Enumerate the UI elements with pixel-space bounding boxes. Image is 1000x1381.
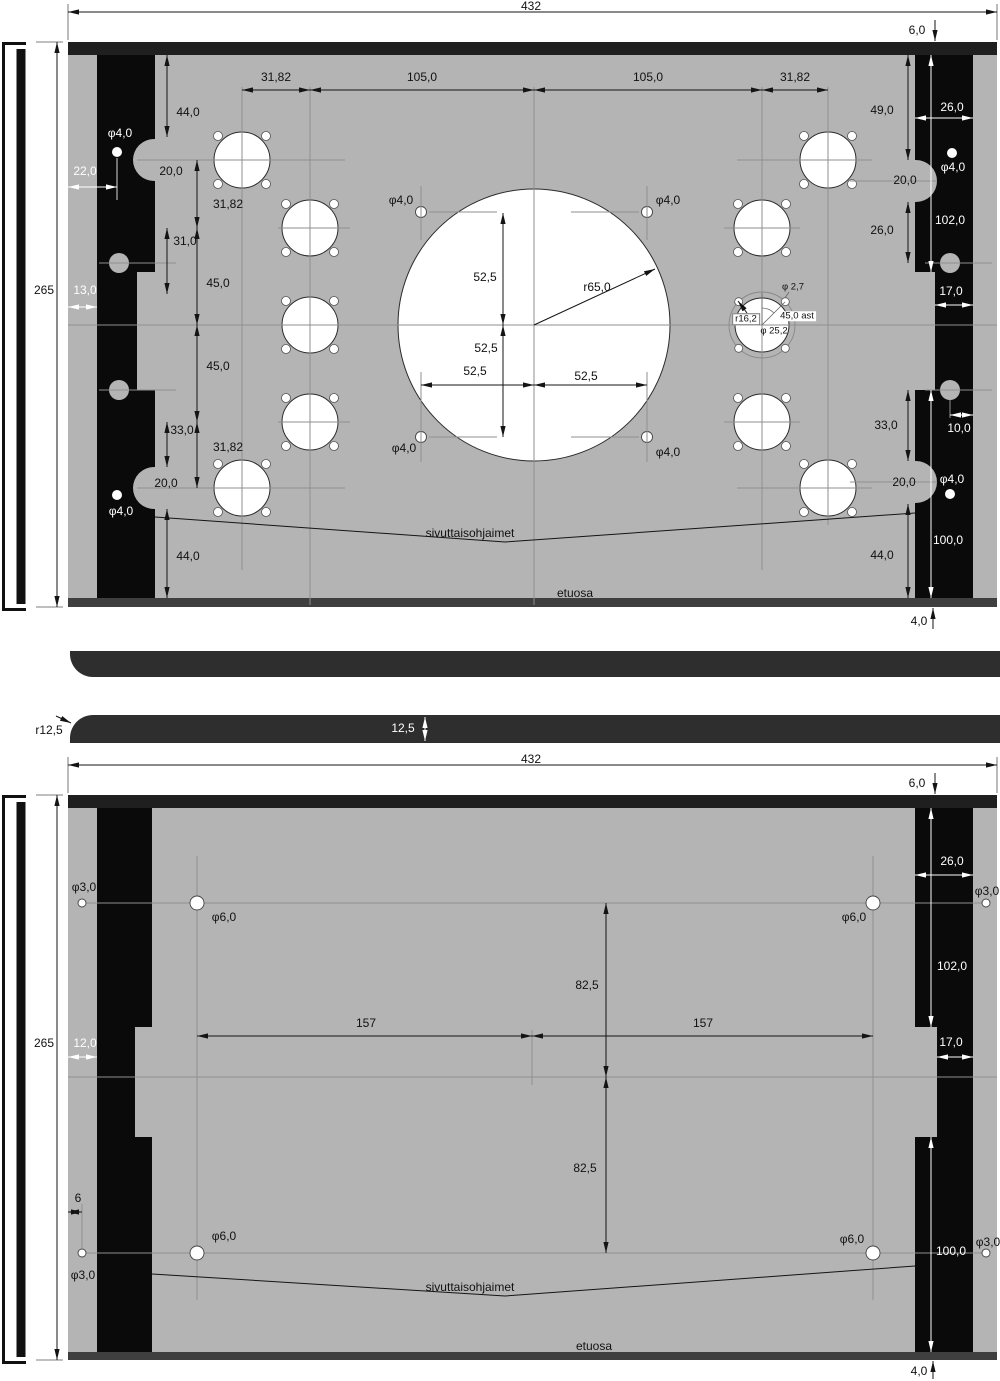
label-guide-hole-tl: φ4,0: [108, 127, 132, 139]
dim-left-33: 33,0: [170, 424, 193, 436]
label-bolt-hole-dia: φ 2,7: [782, 282, 804, 292]
dim-top-chain-2: 105,0: [407, 71, 437, 83]
back-left-profile-bar: [17, 802, 26, 1357]
dim-left-22: 22,0: [73, 165, 96, 177]
back-top-thickness: 6,0: [909, 777, 926, 789]
label-corner-hole-tr: φ4,0: [656, 194, 680, 206]
label-bore-dia: φ 25,2: [760, 326, 787, 336]
front-edge-profile: [70, 651, 1000, 677]
front-left-profile-bar: [17, 49, 26, 604]
guide-hole-phi4: [945, 489, 955, 499]
dim-right-49: 49,0: [870, 104, 893, 116]
label-guide-hole-bl: φ4,0: [109, 505, 133, 517]
dim-left-31: 31,0: [173, 235, 196, 247]
guide-hole-phi4: [112, 147, 122, 157]
front-top-edge-strip: [68, 42, 997, 55]
callout-side-guides-back: sivuttaisohjaimet: [426, 1281, 515, 1293]
back-height: 265: [34, 1037, 54, 1049]
front-top-thickness: 6,0: [909, 24, 926, 36]
dim-right-notch-20-bottom: 20,0: [892, 476, 915, 488]
dim-right-26: 26,0: [870, 224, 893, 236]
dim-center-525-vtop: 52,5: [473, 271, 496, 283]
dim-left-44-top: 44,0: [176, 106, 199, 118]
front-panel-view: [36, 4, 997, 629]
dim-left-44-bottom: 44,0: [176, 550, 199, 562]
dim-back-bar-width: 26,0: [940, 855, 963, 867]
drawing-canvas: [0, 0, 1000, 1381]
front-overall-width: 432: [521, 0, 541, 12]
label-back-phi6-tr: φ6,0: [842, 911, 866, 923]
back-bottom-thickness: 4,0: [911, 1365, 928, 1377]
dim-edge-thickness: 12,5: [391, 722, 414, 734]
back-hole-phi3: [982, 1249, 990, 1257]
back-hole-phi3: [78, 899, 86, 907]
label-back-phi6-bl: φ6,0: [212, 1230, 236, 1242]
dim-left-45-bottom: 45,0: [206, 360, 229, 372]
back-overall-width: 432: [521, 753, 541, 765]
label-corner-hole-br: φ4,0: [656, 446, 680, 458]
dim-back-bar-17: 17,0: [939, 1036, 962, 1048]
dim-back-6: 6: [75, 1192, 82, 1204]
guide-hole-phi4: [947, 148, 957, 158]
dim-right-44: 44,0: [870, 549, 893, 561]
area-label-front: etuosa: [557, 587, 593, 599]
label-corner-hole-tl: φ4,0: [389, 194, 413, 206]
dim-back-825-bottom: 82,5: [573, 1162, 596, 1174]
front-bottom-edge-strip: [68, 598, 997, 607]
dim-back-157-left: 157: [356, 1017, 376, 1029]
dim-center-525-hleft: 52,5: [463, 365, 486, 377]
dim-back-12: 12,0: [73, 1037, 96, 1049]
dim-left-3182-top: 31,82: [213, 198, 243, 210]
dim-left-notch-20-bottom: 20,0: [154, 477, 177, 489]
dim-left-3182-bottom: 31,82: [213, 441, 243, 453]
label-guide-hole-tr: φ4,0: [941, 161, 965, 173]
dim-center-525-vbottom: 52,5: [474, 342, 497, 354]
dim-center-radius: r65,0: [583, 281, 610, 293]
dim-right-33: 33,0: [874, 419, 897, 431]
label-back-phi3-bl: φ3,0: [71, 1269, 95, 1281]
back-edge-profile: [70, 715, 1000, 743]
dim-top-chain-4: 31,82: [780, 71, 810, 83]
callout-side-guides-front: sivuttaisohjaimet: [426, 527, 515, 539]
label-back-phi3-tl: φ3,0: [72, 881, 96, 893]
label-guide-hole-br: φ4,0: [940, 473, 964, 485]
dim-back-157-right: 157: [693, 1017, 713, 1029]
label-bolt-angle: 45,0 ast: [778, 311, 816, 321]
label-bolt-circle-radius: r16,2: [732, 313, 760, 325]
dim-top-chain-3: 105,0: [633, 71, 663, 83]
label-corner-hole-bl: φ4,0: [392, 442, 416, 454]
dim-top-chain-1: 31,82: [261, 71, 291, 83]
back-hole-phi6: [866, 896, 880, 910]
label-back-phi3-br: φ3,0: [976, 1236, 1000, 1248]
dim-back-825-top: 82,5: [575, 979, 598, 991]
dim-left-13: 13,0: [73, 284, 96, 296]
technical-drawing-sheet: 432 6,0 265 4,0 31,82 105,0 105,0 31,82 …: [0, 0, 1000, 1381]
label-back-phi3-tr: φ3,0: [975, 885, 999, 897]
back-top-edge-strip: [68, 795, 997, 808]
dim-right-bar-10: 10,0: [947, 422, 970, 434]
back-hole-phi6: [866, 1246, 880, 1260]
dim-left-notch-20: 20,0: [159, 165, 182, 177]
dim-back-bar-100: 100,0: [936, 1245, 966, 1257]
back-hole-phi6: [190, 1246, 204, 1260]
dim-right-bar-17: 17,0: [939, 285, 962, 297]
back-hole-phi6: [190, 896, 204, 910]
dim-right-bar-102: 102,0: [935, 214, 965, 226]
dim-right-notch-20: 20,0: [893, 174, 916, 186]
dim-center-525-hright: 52,5: [574, 370, 597, 382]
front-bottom-thickness: 4,0: [911, 615, 928, 627]
guide-hole-phi4: [112, 490, 122, 500]
back-bottom-edge-strip: [68, 1352, 997, 1360]
front-height: 265: [34, 284, 54, 296]
dim-left-45-top: 45,0: [206, 277, 229, 289]
dim-back-bar-102: 102,0: [937, 960, 967, 972]
back-hole-phi3: [78, 1249, 86, 1257]
back-panel-view: [36, 757, 997, 1379]
area-label-back: etuosa: [576, 1340, 612, 1352]
dim-edge-radius: r12,5: [35, 724, 62, 736]
dim-right-bar-width: 26,0: [940, 101, 963, 113]
label-back-phi6-tl: φ6,0: [212, 911, 236, 923]
label-back-phi6-br: φ6,0: [840, 1233, 864, 1245]
back-hole-phi3: [982, 899, 990, 907]
dim-right-bar-100: 100,0: [933, 534, 963, 546]
